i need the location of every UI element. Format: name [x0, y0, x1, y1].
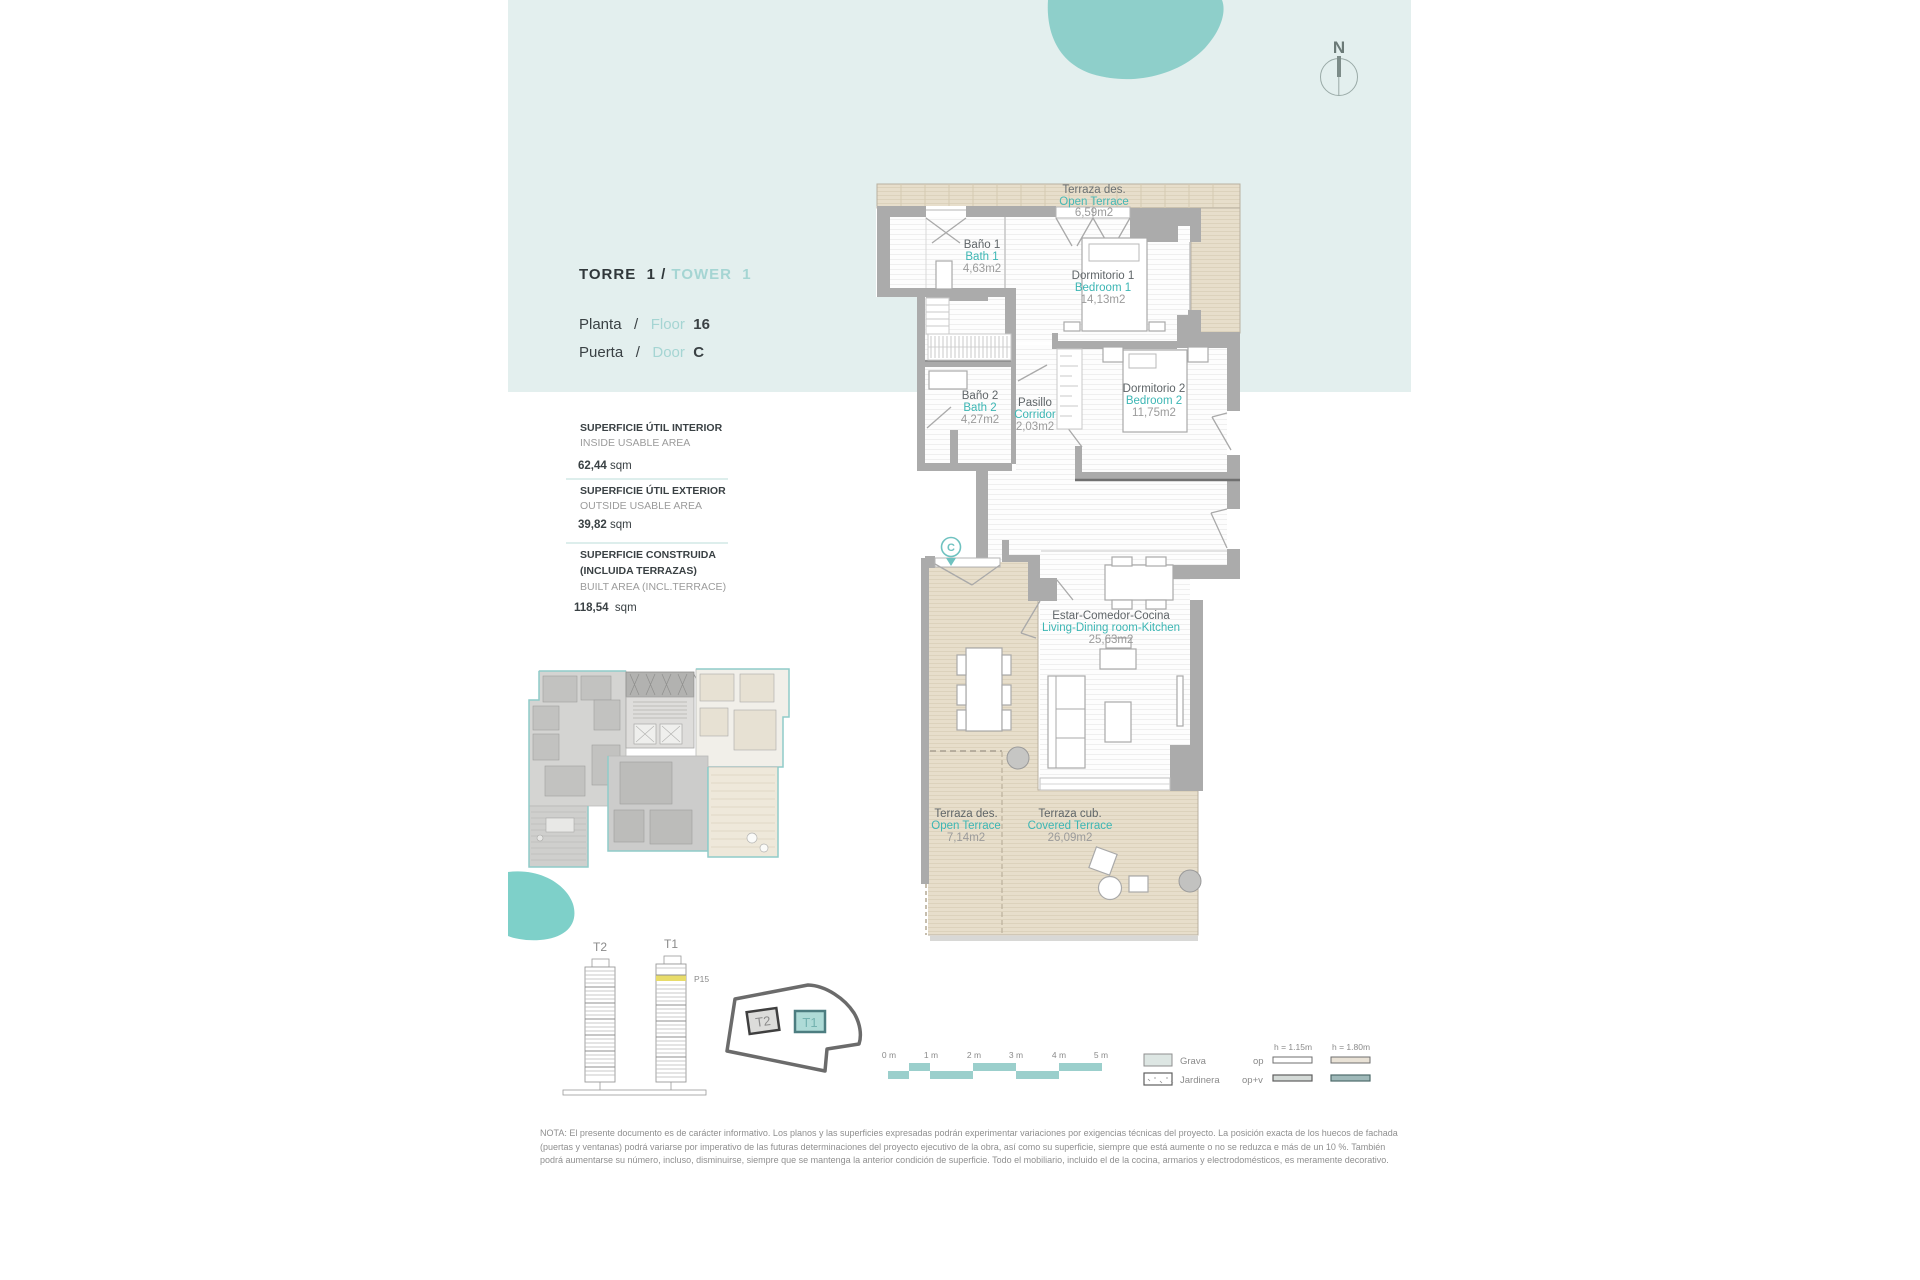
svg-text:Jardinera: Jardinera	[1180, 1075, 1220, 1086]
svg-text:11,75m2: 11,75m2	[1132, 407, 1176, 419]
svg-text:26,09m2: 26,09m2	[1048, 832, 1093, 844]
svg-text:T2: T2	[755, 1013, 772, 1030]
svg-text:25,63m2: 25,63m2	[1089, 634, 1134, 646]
svg-text:Living-Dining room-Kitchen: Living-Dining room-Kitchen	[1042, 622, 1180, 634]
svg-text:5 m: 5 m	[1094, 1050, 1108, 1060]
svg-text:C: C	[947, 542, 955, 554]
svg-text:Dormitorio 2: Dormitorio 2	[1123, 383, 1186, 395]
svg-text:6,59m2: 6,59m2	[1075, 207, 1113, 219]
svg-text:3 m: 3 m	[1009, 1050, 1023, 1060]
svg-text:Terraza des.: Terraza des.	[934, 808, 997, 820]
svg-text:Terraza cub.: Terraza cub.	[1038, 808, 1101, 820]
svg-text:2,03m2: 2,03m2	[1016, 421, 1054, 433]
svg-text:7,14m2: 7,14m2	[947, 832, 985, 844]
svg-text:P15: P15	[694, 974, 709, 984]
svg-text:Covered Terrace: Covered Terrace	[1028, 820, 1113, 832]
svg-text:op+v: op+v	[1242, 1075, 1263, 1086]
svg-text:N: N	[1333, 38, 1345, 57]
svg-text:Baño 2: Baño 2	[962, 390, 998, 402]
svg-text:T1: T1	[664, 937, 678, 951]
svg-text:14,13m2: 14,13m2	[1081, 294, 1126, 306]
svg-text:h = 1.80m: h = 1.80m	[1332, 1042, 1370, 1052]
svg-text:Open Terrace: Open Terrace	[931, 820, 1000, 832]
svg-text:Baño 1: Baño 1	[964, 239, 1000, 251]
svg-text:Corridor: Corridor	[1014, 409, 1056, 421]
svg-text:Estar-Comedor-Cocina: Estar-Comedor-Cocina	[1052, 610, 1170, 622]
svg-text:4 m: 4 m	[1052, 1050, 1066, 1060]
svg-text:h = 1.15m: h = 1.15m	[1274, 1042, 1312, 1052]
svg-text:4,27m2: 4,27m2	[961, 414, 999, 426]
svg-text:Dormitorio 1: Dormitorio 1	[1072, 270, 1135, 282]
svg-text:T2: T2	[593, 940, 607, 954]
svg-text:Bedroom 1: Bedroom 1	[1075, 282, 1131, 294]
svg-text:Terraza des.: Terraza des.	[1062, 184, 1125, 196]
svg-text:Bath 2: Bath 2	[963, 402, 996, 414]
svg-text:T1: T1	[802, 1015, 817, 1030]
svg-text:4,63m2: 4,63m2	[963, 263, 1001, 275]
svg-text:Bedroom 2: Bedroom 2	[1126, 395, 1182, 407]
svg-text:0 m: 0 m	[882, 1050, 896, 1060]
svg-text:2 m: 2 m	[967, 1050, 981, 1060]
svg-text:op: op	[1253, 1056, 1264, 1067]
svg-text:Pasillo: Pasillo	[1018, 397, 1052, 409]
svg-text:Bath 1: Bath 1	[965, 251, 998, 263]
svg-text:Grava: Grava	[1180, 1056, 1207, 1067]
svg-text:1 m: 1 m	[924, 1050, 938, 1060]
